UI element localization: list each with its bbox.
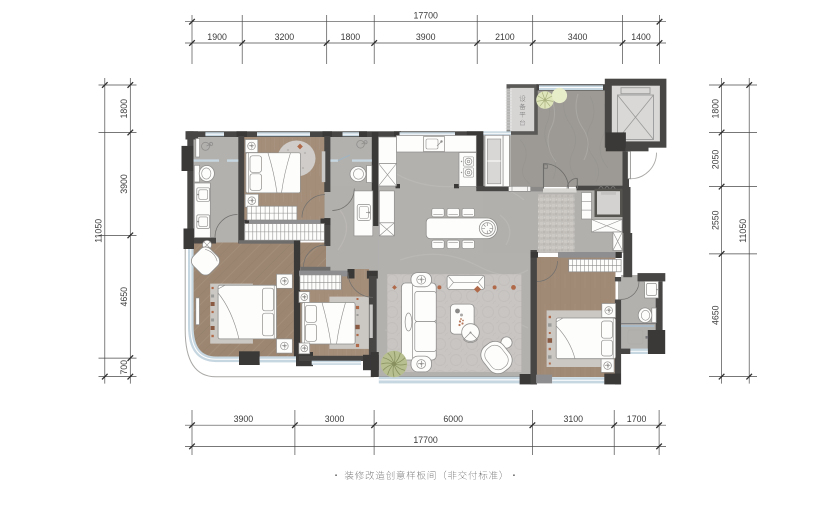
svg-text:3200: 3200 [275, 32, 295, 42]
svg-text:17700: 17700 [413, 11, 438, 21]
svg-text:1800: 1800 [119, 99, 129, 119]
svg-text:1900: 1900 [207, 32, 227, 42]
svg-text:11050: 11050 [94, 219, 104, 243]
svg-text:1400: 1400 [631, 32, 651, 42]
svg-text:17700: 17700 [413, 435, 438, 445]
svg-text:2550: 2550 [710, 210, 720, 230]
svg-text:2100: 2100 [495, 32, 515, 42]
svg-text:3000: 3000 [325, 414, 345, 424]
svg-text:700: 700 [119, 360, 129, 375]
svg-text:6000: 6000 [443, 414, 463, 424]
svg-text:1700: 1700 [627, 414, 647, 424]
svg-text:3900: 3900 [234, 414, 254, 424]
svg-text:4650: 4650 [119, 287, 129, 307]
svg-text:1800: 1800 [710, 99, 720, 119]
svg-text:3100: 3100 [564, 414, 584, 424]
svg-text:3900: 3900 [416, 32, 436, 42]
svg-text:4650: 4650 [710, 305, 720, 325]
svg-text:11050: 11050 [738, 219, 748, 243]
svg-text:1800: 1800 [341, 32, 361, 42]
svg-text:3400: 3400 [568, 32, 588, 42]
svg-text:3900: 3900 [119, 174, 129, 194]
svg-text:2050: 2050 [710, 150, 720, 170]
